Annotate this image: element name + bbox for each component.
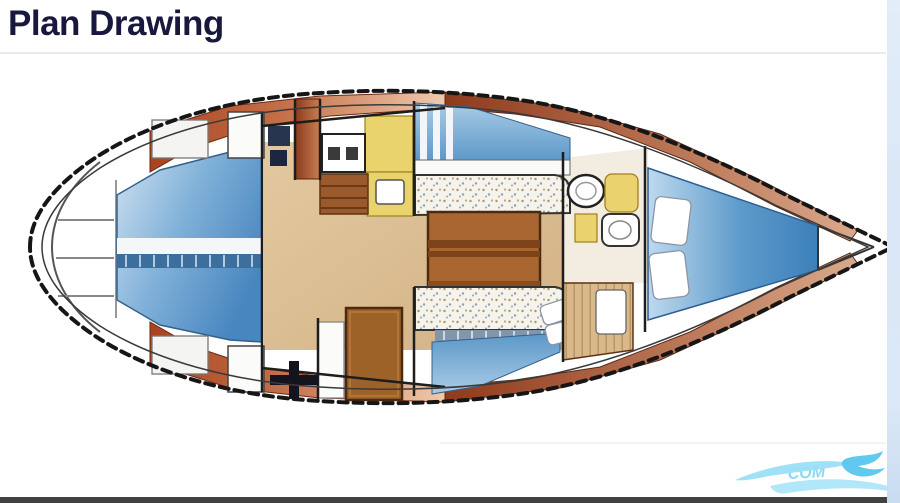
nav-station-seat bbox=[270, 150, 287, 166]
image-bottom-boundary bbox=[440, 442, 886, 444]
wardrobe-door bbox=[346, 308, 402, 400]
nav-station bbox=[268, 126, 290, 146]
bow-locker-box bbox=[596, 290, 626, 334]
head-cabinet bbox=[575, 214, 597, 242]
head-seat bbox=[605, 174, 638, 212]
aft-locker-strip bbox=[228, 112, 264, 158]
stove-burner-left bbox=[328, 147, 340, 160]
stove-burner-right bbox=[346, 147, 358, 160]
galley-sink bbox=[376, 180, 404, 204]
aft-cabin bbox=[117, 112, 264, 392]
right-edge-strip bbox=[887, 0, 900, 503]
aft-berth-walkway bbox=[117, 238, 262, 254]
watermark-fish bbox=[842, 451, 885, 477]
head-sink bbox=[568, 175, 604, 207]
aft-locker-strip-lower bbox=[228, 346, 264, 392]
head-toilet bbox=[602, 214, 639, 246]
companionway-steps bbox=[320, 174, 368, 214]
galley-counter-upper bbox=[365, 116, 413, 172]
starboard-locker-stripes bbox=[420, 104, 453, 161]
watermark-logo: COM bbox=[735, 451, 896, 493]
starboard-settee bbox=[415, 175, 570, 215]
salon-table bbox=[428, 212, 540, 290]
bottom-bar bbox=[0, 497, 887, 503]
plan-drawing-page: Plan Drawing bbox=[0, 0, 900, 503]
starboard-shelf bbox=[415, 160, 570, 175]
companionway-hatch bbox=[295, 99, 320, 179]
boat-plan-image: COM bbox=[0, 0, 900, 503]
aft-berth-slats bbox=[117, 254, 262, 268]
